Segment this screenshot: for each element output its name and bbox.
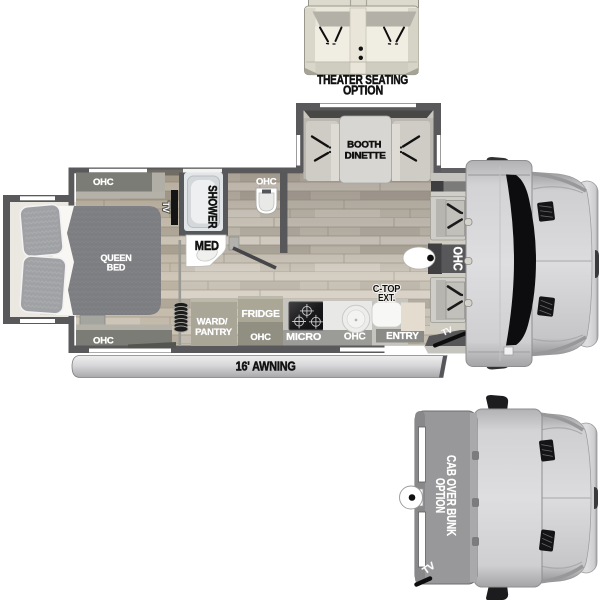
svg-text:BOOTH: BOOTH xyxy=(347,140,381,151)
svg-text:OHC: OHC xyxy=(93,336,114,347)
svg-text:16' AWNING: 16' AWNING xyxy=(236,360,296,374)
svg-text:MED: MED xyxy=(195,239,219,253)
svg-text:TV: TV xyxy=(161,201,171,212)
svg-text:OPTION: OPTION xyxy=(343,83,383,98)
svg-text:OPTION: OPTION xyxy=(433,478,447,513)
svg-text:OHC: OHC xyxy=(451,247,465,271)
svg-text:ENTRY: ENTRY xyxy=(386,331,419,342)
svg-text:OHC: OHC xyxy=(250,332,271,343)
svg-text:PANTRY: PANTRY xyxy=(195,327,233,338)
svg-text:OHC: OHC xyxy=(93,177,114,188)
svg-text:QUEEN: QUEEN xyxy=(100,253,131,263)
svg-text:MICRO: MICRO xyxy=(286,332,321,343)
svg-text:DINETTE: DINETTE xyxy=(345,150,386,161)
svg-text:OHC: OHC xyxy=(344,332,366,343)
svg-text:FRIDGE: FRIDGE xyxy=(241,308,280,320)
svg-text:SHOWER: SHOWER xyxy=(206,185,218,229)
svg-text:EXT.: EXT. xyxy=(378,292,395,304)
svg-text:OHC: OHC xyxy=(256,177,277,188)
svg-text:BED: BED xyxy=(107,263,126,273)
